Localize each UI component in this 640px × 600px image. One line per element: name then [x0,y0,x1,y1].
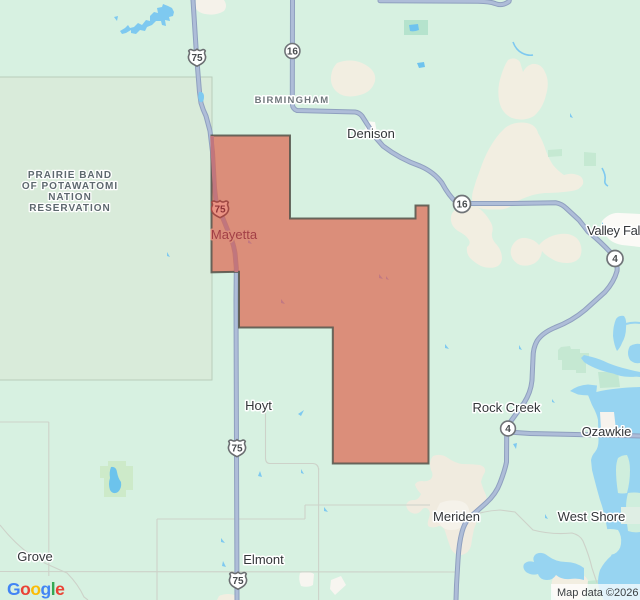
svg-text:75: 75 [191,53,203,64]
svg-text:16: 16 [456,200,468,211]
svg-text:75: 75 [214,205,226,216]
svg-text:BIRMINGHAM: BIRMINGHAM [255,95,330,106]
svg-text:RESERVATION: RESERVATION [29,203,111,214]
svg-text:Meriden: Meriden [433,509,480,524]
svg-text:4: 4 [612,254,618,265]
svg-text:NATION: NATION [48,192,92,203]
svg-text:Valley Falls: Valley Falls [587,223,640,238]
svg-text:Ozawkie: Ozawkie [582,424,632,439]
svg-text:Map data ©2026: Map data ©2026 [557,587,639,599]
svg-text:4: 4 [505,424,511,435]
svg-text:Hoyt: Hoyt [245,398,272,413]
svg-text:Grove: Grove [17,549,52,564]
svg-text:Elmont: Elmont [243,552,284,567]
svg-text:Denison: Denison [347,126,395,141]
svg-text:75: 75 [231,444,243,455]
svg-text:16: 16 [287,47,299,58]
svg-text:West Shore: West Shore [558,509,626,524]
svg-text:Google: Google [7,579,65,599]
svg-text:PRAIRIE BAND: PRAIRIE BAND [28,170,112,181]
svg-text:75: 75 [232,576,244,587]
svg-text:Mayetta: Mayetta [211,227,258,242]
svg-text:OF POTAWATOMI: OF POTAWATOMI [22,181,118,192]
svg-text:Rock Creek: Rock Creek [473,400,541,415]
